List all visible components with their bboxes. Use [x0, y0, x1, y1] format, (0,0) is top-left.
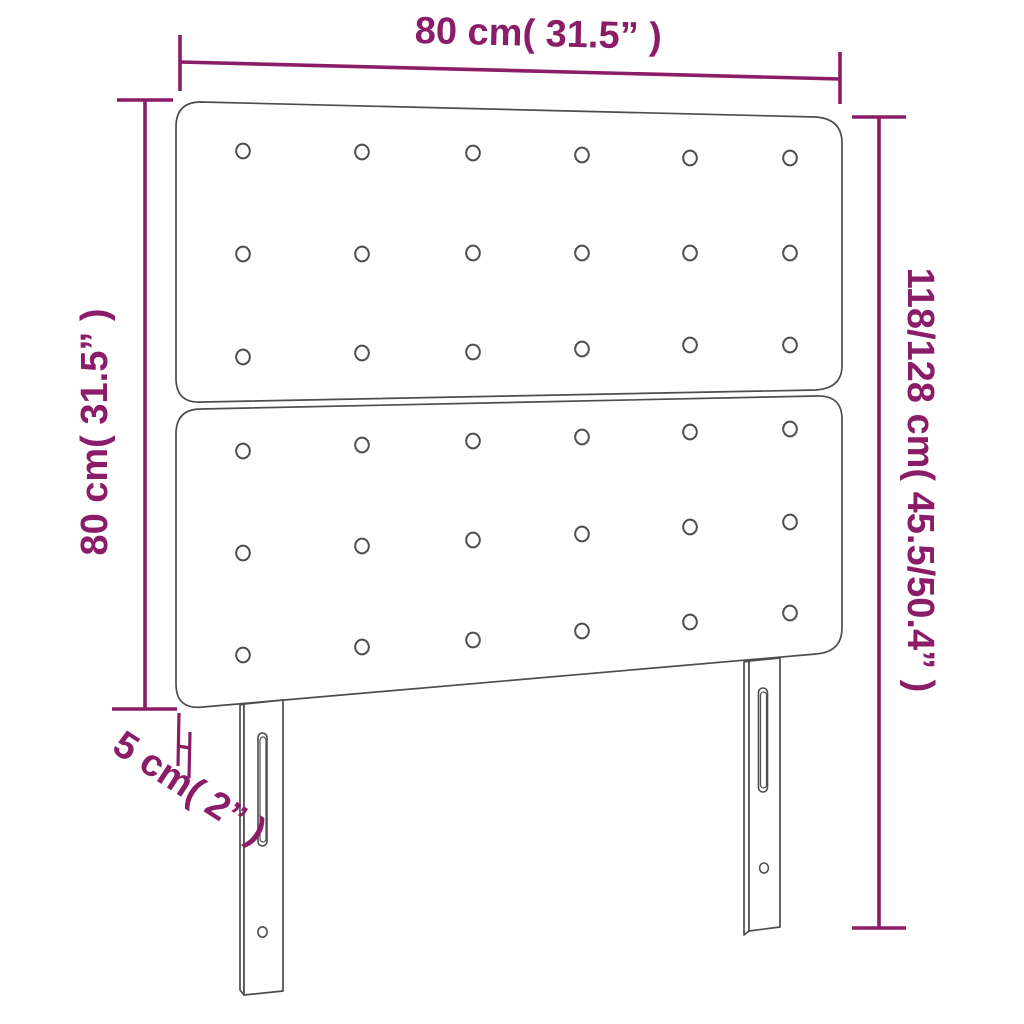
dimension-height-right: 118/128 cm( 45.5/50.4” ) — [852, 117, 941, 928]
tufting-button — [236, 546, 250, 561]
tufting-button — [683, 615, 697, 630]
right-leg — [744, 658, 780, 935]
dimension-line — [178, 746, 190, 748]
tufting-button — [783, 515, 797, 530]
tufting-button — [355, 346, 369, 361]
tufting-button — [575, 624, 589, 639]
headboard-upper-panel — [176, 102, 842, 402]
right-leg-screw-hole — [760, 863, 769, 873]
tufting-button — [783, 422, 797, 437]
tufting-button — [575, 246, 589, 261]
tufting-button — [683, 338, 697, 353]
tufting-button — [355, 438, 369, 453]
tufting-button — [683, 425, 697, 440]
tufting-button — [575, 527, 589, 542]
tufting-button — [236, 144, 250, 159]
left-leg-screw-hole — [258, 927, 267, 937]
tufting-button — [783, 338, 797, 353]
tufting-button — [683, 151, 697, 166]
tufting-button — [466, 533, 480, 548]
tufting-button — [466, 633, 480, 648]
tufting-button — [575, 342, 589, 357]
dimension-height-right-label: 118/128 cm( 45.5/50.4” ) — [899, 268, 941, 693]
dimension-line — [180, 62, 840, 79]
headboard-dimension-diagram: 80 cm( 31.5” ) 80 cm( 31.5” ) 118/128 cm… — [0, 0, 1024, 1024]
tufting-button — [236, 350, 250, 365]
dimension-width-top-label: 80 cm( 31.5” ) — [414, 10, 662, 58]
tufting-button — [783, 606, 797, 621]
tufting-button — [575, 430, 589, 445]
tufting-button — [355, 145, 369, 160]
tufting-button — [355, 539, 369, 554]
tufting-button — [466, 345, 480, 360]
tufting-button — [683, 520, 697, 535]
tufting-button — [355, 247, 369, 262]
tufting-button — [783, 246, 797, 261]
tufting-button — [466, 434, 480, 449]
tufting-button — [236, 247, 250, 262]
dimension-height-left: 80 cm( 31.5” ) — [74, 100, 177, 709]
tufting-button — [783, 151, 797, 166]
tufting-button — [236, 648, 250, 663]
headboard — [176, 102, 842, 995]
tufting-button — [683, 246, 697, 261]
tufting-button — [355, 640, 369, 655]
tufting-button — [236, 444, 250, 459]
tufting-button — [466, 146, 480, 161]
tufting-button — [466, 246, 480, 261]
dimension-width-top: 80 cm( 31.5” ) — [180, 10, 840, 104]
diagram-canvas: 80 cm( 31.5” ) 80 cm( 31.5” ) 118/128 cm… — [0, 0, 1024, 1024]
dimension-height-left-label: 80 cm( 31.5” ) — [74, 308, 116, 555]
headboard-lower-panel — [176, 396, 842, 707]
tufting-button — [575, 148, 589, 163]
